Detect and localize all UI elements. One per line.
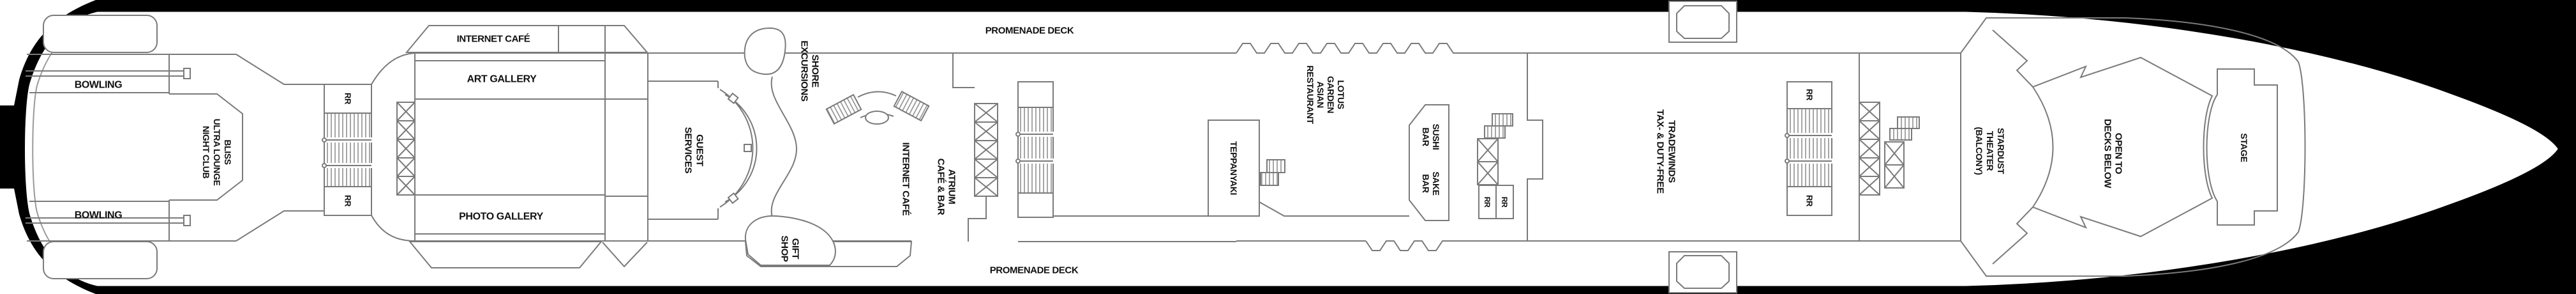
sushi-sake-bar-room bbox=[1409, 105, 1449, 220]
service-stairs-icon bbox=[1890, 128, 1912, 140]
bowling-top-label: BOWLING bbox=[75, 80, 123, 91]
lotus-label-line4: RESTAURANT bbox=[1305, 65, 1315, 124]
gift-shop-label-line2: SHOP bbox=[779, 236, 790, 262]
atrium-cafe-label-line1: ATRIUM bbox=[947, 169, 957, 205]
guest-services-label-line2: SERVICES bbox=[683, 127, 694, 174]
service-stairs-icon bbox=[1492, 114, 1513, 126]
stair-lobby bbox=[1018, 193, 1053, 217]
sushi-bar-label-line1: SUSHI bbox=[1431, 124, 1441, 150]
deck-plan-diagram: BOWLING BOWLING BLISS ULTRA LOUNGE NIGHT… bbox=[0, 0, 2576, 294]
internet-cafe-atrium-label: INTERNET CAFÉ bbox=[901, 143, 911, 216]
lotus-label-line1: LOTUS bbox=[1336, 80, 1346, 109]
desk-tab-icon bbox=[744, 144, 751, 151]
internet-cafe-label: INTERNET CAFÉ bbox=[457, 34, 530, 45]
stair-post-icon bbox=[1785, 159, 1789, 163]
shore-excursions-label-line1: SHORE bbox=[810, 54, 821, 88]
lotus-label-line2: GARDEN bbox=[1326, 76, 1336, 114]
restroom-label: RR bbox=[1805, 89, 1815, 101]
stair-post-icon bbox=[322, 138, 326, 142]
restroom-label: RR bbox=[343, 195, 353, 207]
stardust-label-line2: THEATER bbox=[1985, 131, 1995, 171]
stern-terrace-bottom bbox=[43, 242, 157, 279]
open-to-decks-label-line1: OPEN TO bbox=[2113, 133, 2124, 174]
sake-bar-label-line2: BAR bbox=[1421, 174, 1431, 192]
restroom-label: RR bbox=[1805, 195, 1815, 207]
photo-gallery-label: PHOTO GALLERY bbox=[459, 212, 543, 222]
teppanyaki-label: TEPPANYAKI bbox=[1229, 141, 1239, 195]
tradewinds-label-line1: TRADEWINDS bbox=[1666, 120, 1677, 183]
promenade-deck-top-label: PROMENADE DECK bbox=[985, 26, 1074, 36]
stair-lobby bbox=[1018, 82, 1053, 107]
service-stairs-icon bbox=[1267, 160, 1285, 173]
restroom-label: RR bbox=[1483, 197, 1492, 208]
stair-post-icon bbox=[1016, 132, 1020, 136]
deck-plan-page: BOWLING BOWLING BLISS ULTRA LOUNGE NIGHT… bbox=[0, 0, 2576, 294]
gift-shop-label-line1: GIFT bbox=[790, 238, 801, 259]
service-stairs-icon bbox=[1261, 173, 1278, 185]
sushi-bar-label-line2: BAR bbox=[1421, 127, 1431, 146]
stern-terrace-top bbox=[43, 15, 157, 52]
stair-post-icon bbox=[1016, 159, 1020, 163]
bowling-bottom-label: BOWLING bbox=[75, 210, 123, 221]
promenade-deck-bottom-label: PROMENADE DECK bbox=[990, 265, 1079, 276]
stairs-icon bbox=[324, 113, 371, 187]
sake-bar-label-line1: SAKE bbox=[1431, 171, 1441, 195]
open-to-decks-label-line2: DECKS BELOW bbox=[2102, 119, 2113, 189]
lower-gallery-room bbox=[410, 242, 601, 268]
stairs-icon bbox=[1018, 107, 1053, 193]
tender-platform bbox=[1669, 1, 1737, 42]
stardust-label-line3: (BALCONY) bbox=[1974, 127, 1984, 175]
guest-services-label-line1: GUEST bbox=[694, 134, 705, 166]
service-stairs-icon bbox=[1898, 117, 1919, 128]
stair-post-icon bbox=[322, 164, 326, 167]
tender-platform bbox=[1669, 252, 1737, 293]
lotus-label-line3: ASIAN bbox=[1315, 81, 1326, 108]
stairs-icon bbox=[1787, 109, 1832, 187]
service-stairs-icon bbox=[1485, 126, 1505, 138]
bliss-label-line3: NIGHT CLUB bbox=[201, 126, 211, 179]
shore-excursions-desk bbox=[745, 28, 786, 74]
tradewinds-label-line2: TAX- & DUTY-FREE bbox=[1655, 109, 1666, 194]
stair-post-icon bbox=[1785, 134, 1789, 137]
art-gallery-label: ART GALLERY bbox=[467, 74, 537, 85]
bliss-label-line2: ULTRA LOUNGE bbox=[212, 119, 222, 186]
atrium-feature-icon bbox=[865, 111, 888, 124]
restroom-label: RR bbox=[1500, 197, 1509, 208]
stardust-label-line1: STARDUST bbox=[1996, 128, 2006, 174]
atrium-cafe-label-line2: CAFÉ & BAR bbox=[936, 159, 947, 215]
ship-hull bbox=[22, 9, 2562, 289]
restroom-label: RR bbox=[343, 93, 353, 105]
bliss-label-line1: BLISS bbox=[223, 139, 233, 164]
shore-excursions-label-line2: EXCURSIONS bbox=[799, 40, 810, 102]
stage-label: STAGE bbox=[2239, 133, 2249, 162]
